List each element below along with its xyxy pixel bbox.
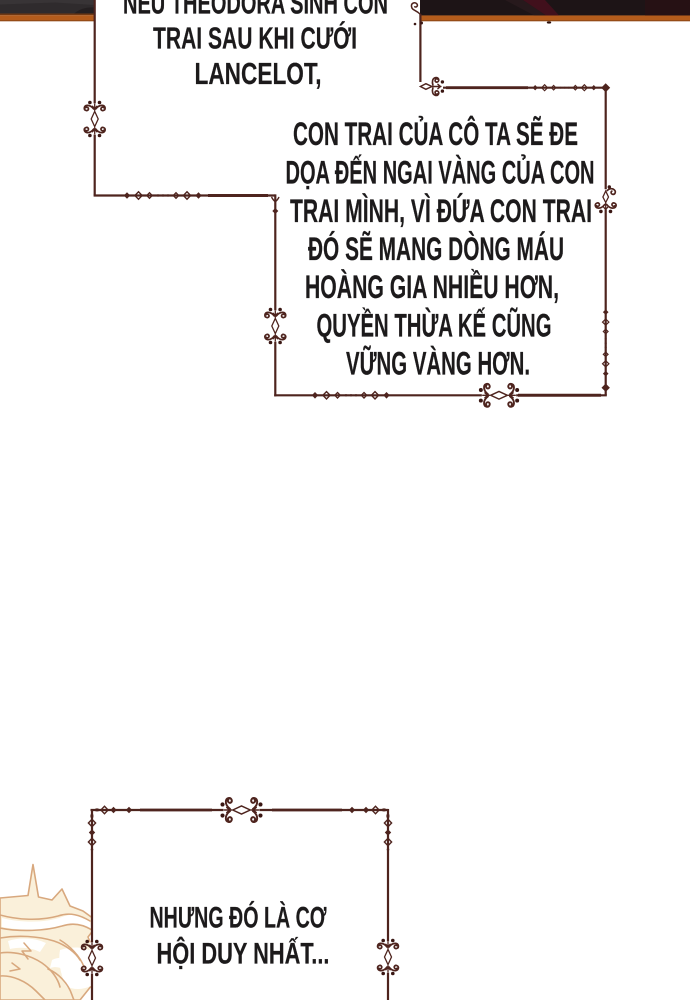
- svg-text:TRAI SAU KHI CƯỚI: TRAI SAU KHI CƯỚI: [153, 20, 357, 56]
- svg-text:VỮNG VÀNG HƠN.: VỮNG VÀNG HƠN.: [346, 346, 530, 382]
- svg-text:DỌA ĐẾN NGAI VÀNG CỦA CON: DỌA ĐẾN NGAI VÀNG CỦA CON: [286, 155, 595, 191]
- svg-text:QUYỀN THỪA KẾ CŨNG: QUYỀN THỪA KẾ CŨNG: [317, 308, 552, 344]
- svg-text:HỘI DUY NHẤT...: HỘI DUY NHẤT...: [157, 937, 330, 971]
- svg-text:HOÀNG GIA NHIỀU HƠN,: HOÀNG GIA NHIỀU HƠN,: [305, 269, 559, 305]
- svg-text:CON TRAI CỦA CÔ TA SẼ ĐE: CON TRAI CỦA CÔ TA SẼ ĐE: [293, 116, 578, 152]
- svg-text:ĐÓ SẼ MANG DÒNG MÁU: ĐÓ SẼ MANG DÒNG MÁU: [308, 231, 564, 267]
- svg-text:TRAI MÌNH, VÌ ĐỨA CON TRAI: TRAI MÌNH, VÌ ĐỨA CON TRAI: [290, 193, 592, 229]
- svg-text:LANCELOT,: LANCELOT,: [195, 56, 322, 91]
- svg-text:NHƯNG ĐÓ LÀ CƠ: NHƯNG ĐÓ LÀ CƠ: [150, 901, 327, 935]
- svg-text:NẾU THEODORA SINH CON: NẾU THEODORA SINH CON: [123, 0, 388, 21]
